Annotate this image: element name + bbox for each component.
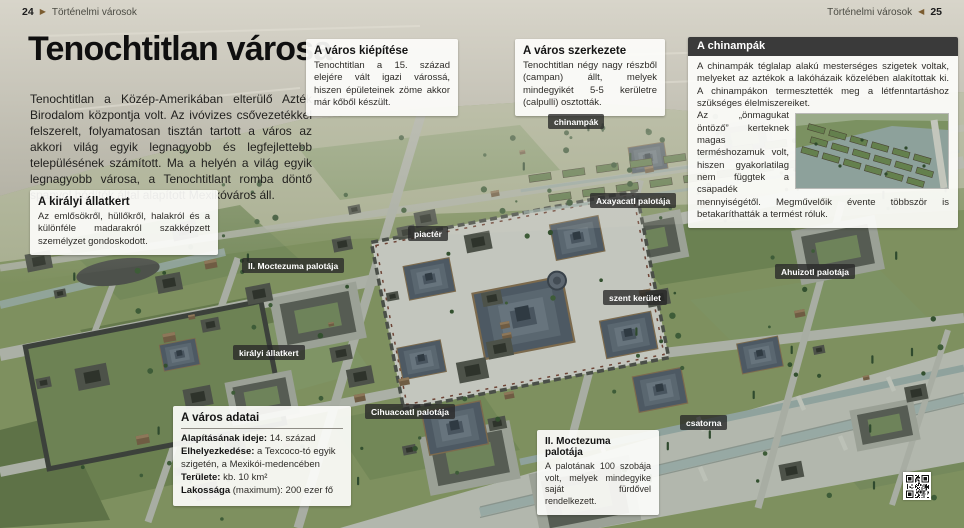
infobox-title: II. Moctezuma palotája <box>545 436 651 458</box>
infobox-varos-kiepitese: A város kiépítése Tenochtitlan a 15. szá… <box>306 39 458 116</box>
page-number-left: 24 <box>22 6 34 18</box>
infobox-varos-szerkezete: A város szerkezete Tenochtitlan négy nag… <box>515 39 665 116</box>
map-label-axayacatl-palota: Axayacatl palotája <box>590 193 676 208</box>
chinampa-inset-image <box>795 113 949 189</box>
infobox-chinampak: A chinampák A chinampák téglalap alakú m… <box>688 37 958 228</box>
infobox-varos-adatai: A város adatai Alapításának ideje: 14. s… <box>173 406 351 506</box>
map-label-cihuacoatl-palota: Cihuacoatl palotája <box>365 404 455 419</box>
fact-row-founded: Alapításának ideje: 14. század <box>181 433 343 445</box>
fact-row-location: Elhelyezkedése: a Texcoco-tó egyik szige… <box>181 446 343 471</box>
page-header-left: 24 ▶ Történelmi városok <box>22 6 137 18</box>
infobox-title: A város kiépítése <box>314 45 450 57</box>
fact-row-area: Területe: kb. 10 km² <box>181 472 343 484</box>
map-label-csatorna: csatorna <box>680 415 727 430</box>
infobox-body: A palotának 100 szobája volt, melyek min… <box>545 461 651 508</box>
book-spread-page: 24 ▶ Történelmi városok Történelmi város… <box>0 0 964 528</box>
infobox-body: Az emlősökről, hüllőkről, halakról és a … <box>38 211 210 248</box>
page-title: Tenochtitlan városa <box>28 30 331 69</box>
map-label-chinampak: chinampák <box>548 114 604 129</box>
map-label-ahuizotl-palota: Ahuizotl palotája <box>775 264 855 279</box>
section-title-right: Történelmi városok <box>827 7 912 18</box>
fact-row-population: Lakossága (maximum): 200 ezer fő <box>181 485 343 497</box>
map-label-szent-kerulet: szent kerület <box>603 290 667 305</box>
infobox-body: A chinampák téglalap alakú mesterséges s… <box>697 61 949 110</box>
infobox-kiralyi-allatkert: A királyi állatkert Az emlősökről, hüllő… <box>30 190 218 255</box>
page-header-right: Történelmi városok ◀ 25 <box>827 6 942 18</box>
infobox-title: A város szerkezete <box>523 45 657 57</box>
arrow-left-icon: ◀ <box>918 8 924 16</box>
infobox-title-bar: A chinampák <box>688 37 958 56</box>
infobox-body: Tenochtitlan a 15. század elejére vált i… <box>314 60 450 109</box>
divider <box>181 428 343 429</box>
arrow-right-icon: ▶ <box>40 8 46 16</box>
map-label-moctezuma-palota: II. Moctezuma palotája <box>242 258 344 273</box>
intro-paragraph: Tenochtitlan a Közép-Amerikában elterülő… <box>30 92 312 204</box>
page-number-right: 25 <box>930 6 942 18</box>
infobox-body: Tenochtitlan négy nagy részből (campan) … <box>523 60 657 109</box>
map-label-piacter: piactér <box>408 226 448 241</box>
map-label-kiralyi-allatkert: királyi állatkert <box>233 345 305 360</box>
infobox-moctezuma-palota: II. Moctezuma palotája A palotának 100 s… <box>537 430 659 515</box>
section-title-left: Történelmi városok <box>52 7 137 18</box>
qr-code <box>903 472 931 500</box>
infobox-title: A város adatai <box>181 412 343 424</box>
infobox-title: A királyi állatkert <box>38 196 210 208</box>
